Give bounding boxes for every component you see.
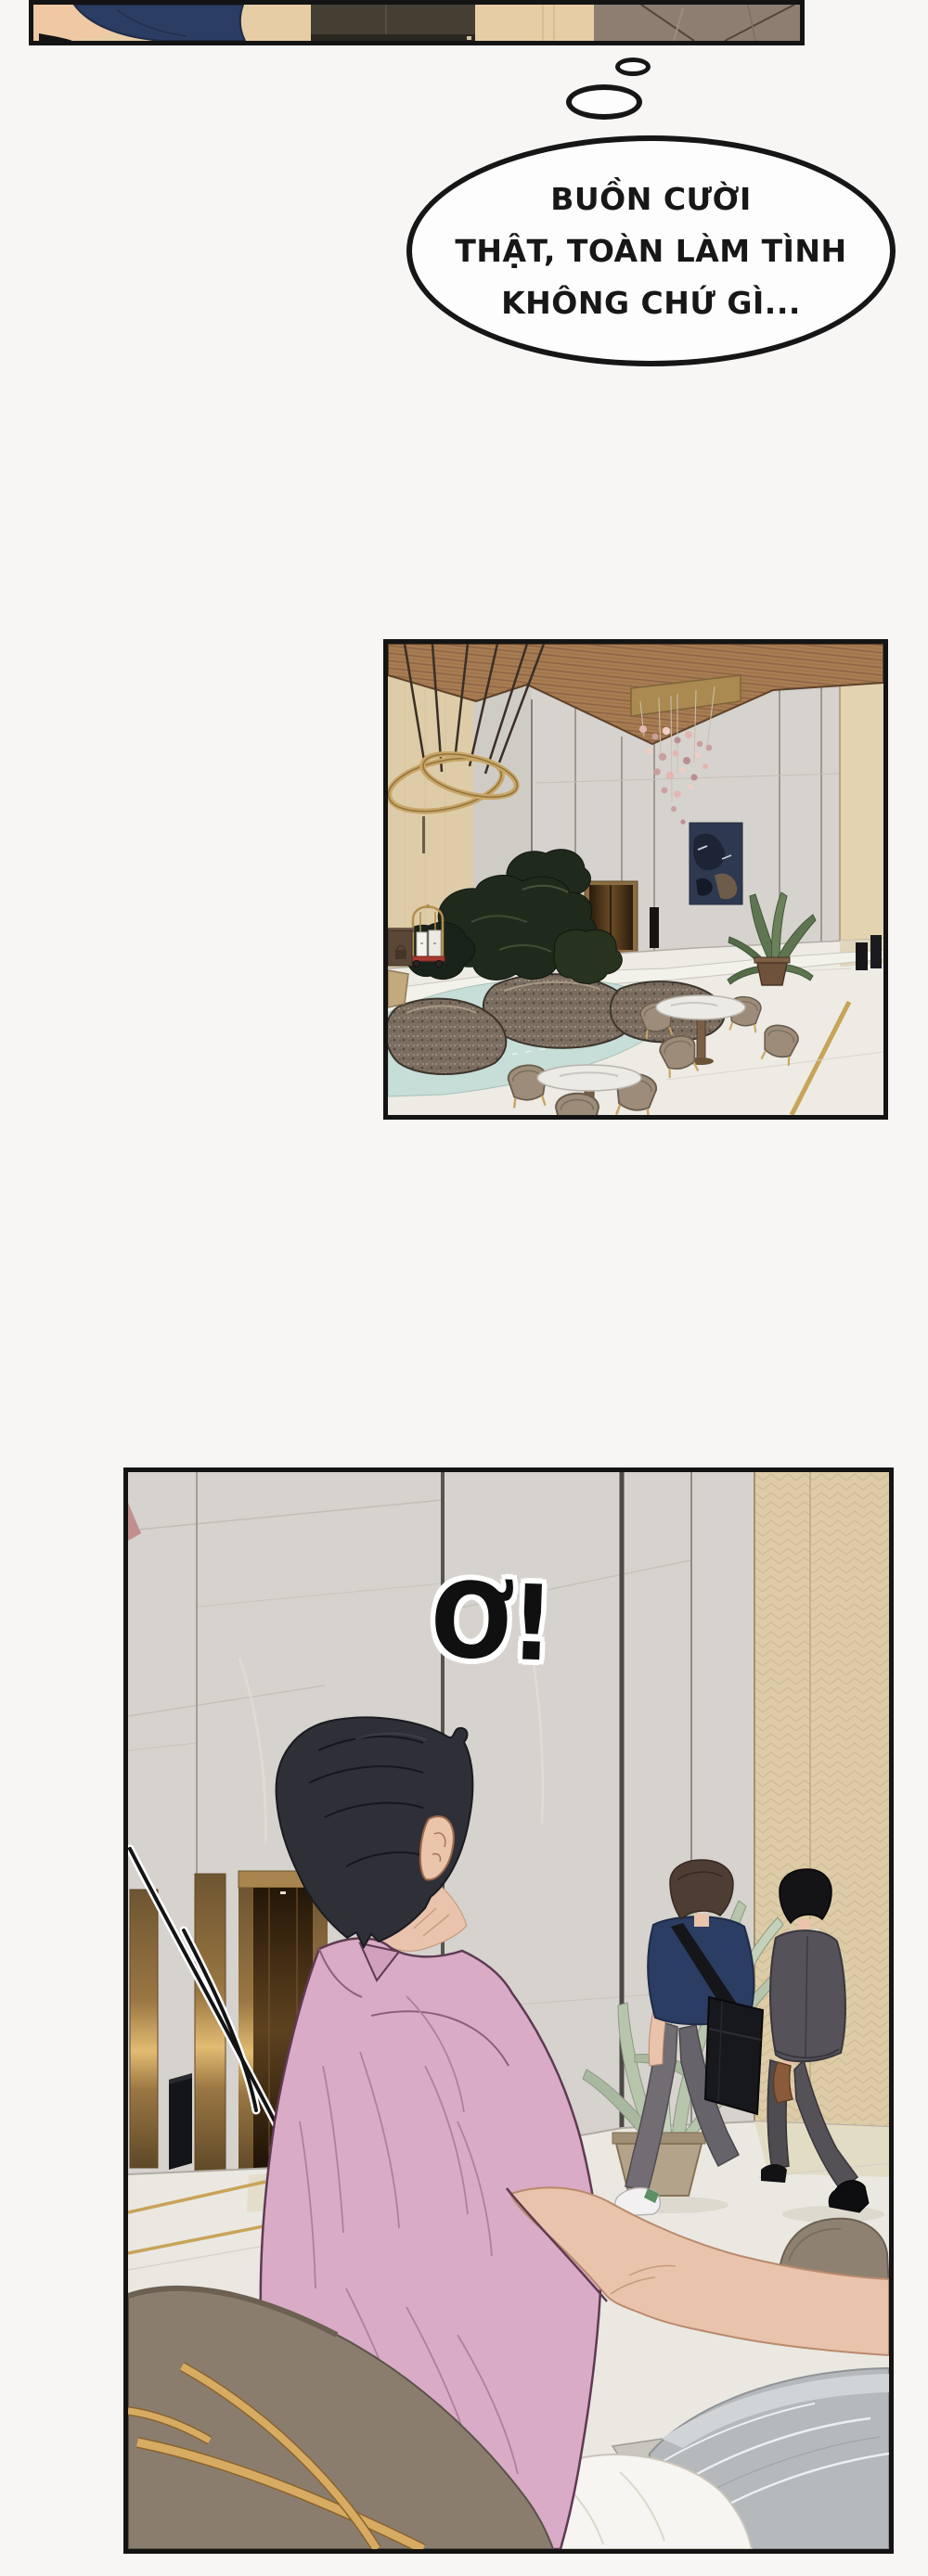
lobby-side-chair xyxy=(388,970,408,1007)
thought-line-3: KHÔNG CHỨ GÌ... xyxy=(501,277,801,329)
top-cropped-panel xyxy=(29,0,805,45)
thought-trail-medium xyxy=(566,84,642,120)
comic-page: BUỒN CƯỜI THẬT, TOÀN LÀM TÌNH KHÔNG CHỨ … xyxy=(0,0,928,2576)
top-panel-art xyxy=(33,5,800,41)
thought-line-2: THẬT, TOÀN LÀM TÌNH xyxy=(455,225,846,277)
thought-trail-small xyxy=(615,58,651,76)
wall-artwork xyxy=(690,823,742,904)
lobby-art xyxy=(388,644,883,1115)
thought-line-1: BUỒN CƯỜI xyxy=(550,173,752,225)
sfx-exclamation: Ơ! xyxy=(428,1560,552,1685)
side-cabinet xyxy=(388,928,414,966)
thought-bubble: BUỒN CƯỜI THẬT, TOÀN LÀM TÌNH KHÔNG CHỨ … xyxy=(406,135,896,366)
hotel-lobby-panel xyxy=(383,639,888,1120)
